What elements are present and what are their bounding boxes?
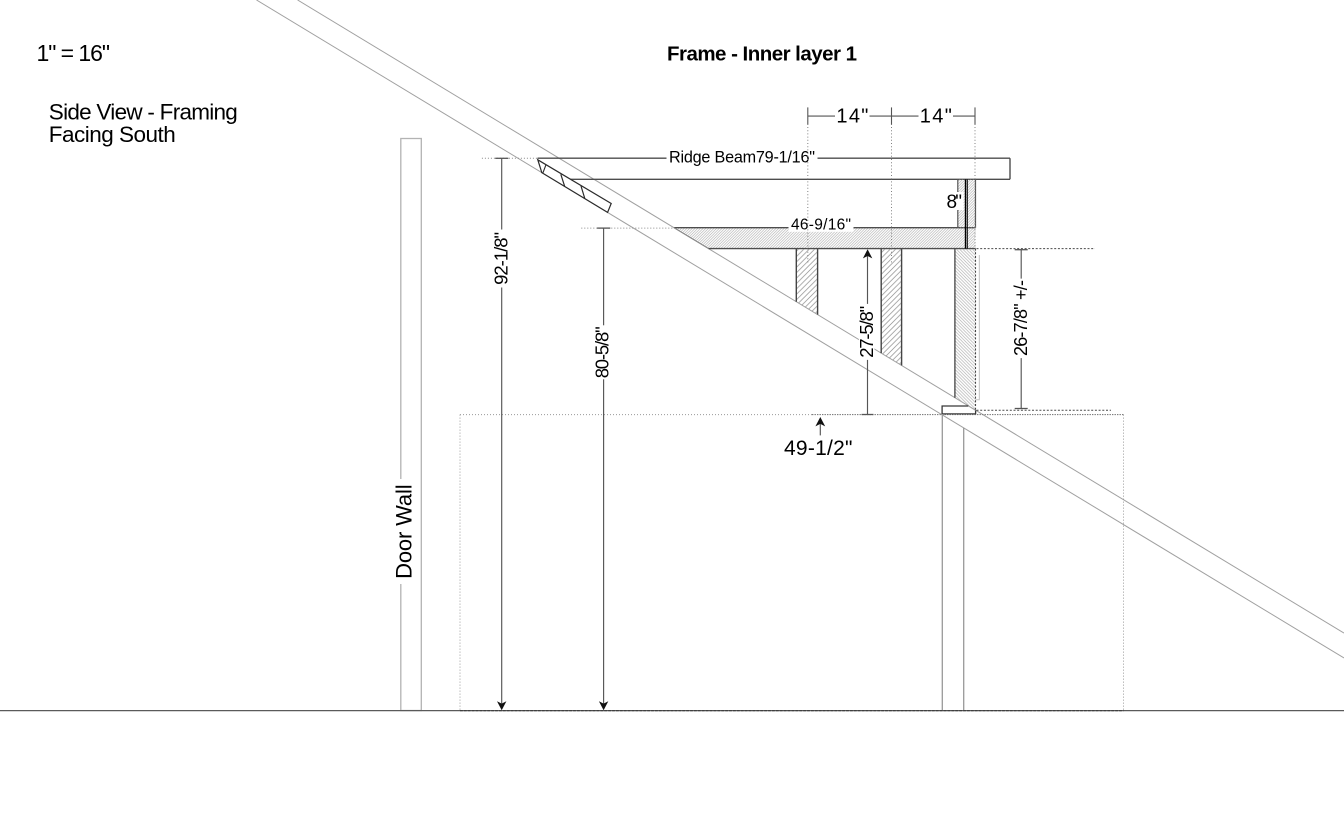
svg-text:49-1/2": 49-1/2" — [784, 437, 853, 460]
svg-text:Side View - Framing: Side View - Framing — [49, 99, 238, 124]
svg-text:Facing South: Facing South — [49, 122, 176, 147]
svg-text:14": 14" — [920, 105, 952, 127]
svg-text:26-7/8" +/-: 26-7/8" +/- — [1011, 280, 1031, 356]
svg-text:8": 8" — [947, 192, 963, 213]
svg-text:80-5/8": 80-5/8" — [592, 326, 613, 378]
svg-text:Door Wall: Door Wall — [391, 484, 416, 579]
svg-text:46-9/16": 46-9/16" — [791, 216, 851, 233]
svg-text:92-1/8": 92-1/8" — [491, 232, 512, 285]
svg-text:Frame - Inner layer 1: Frame - Inner layer 1 — [667, 42, 857, 65]
svg-text:27-5/8": 27-5/8" — [856, 306, 877, 358]
svg-text:Ridge Beam79-1/16": Ridge Beam79-1/16" — [669, 148, 815, 166]
svg-text:14": 14" — [836, 105, 868, 127]
svg-text:1" = 16": 1" = 16" — [37, 40, 111, 66]
